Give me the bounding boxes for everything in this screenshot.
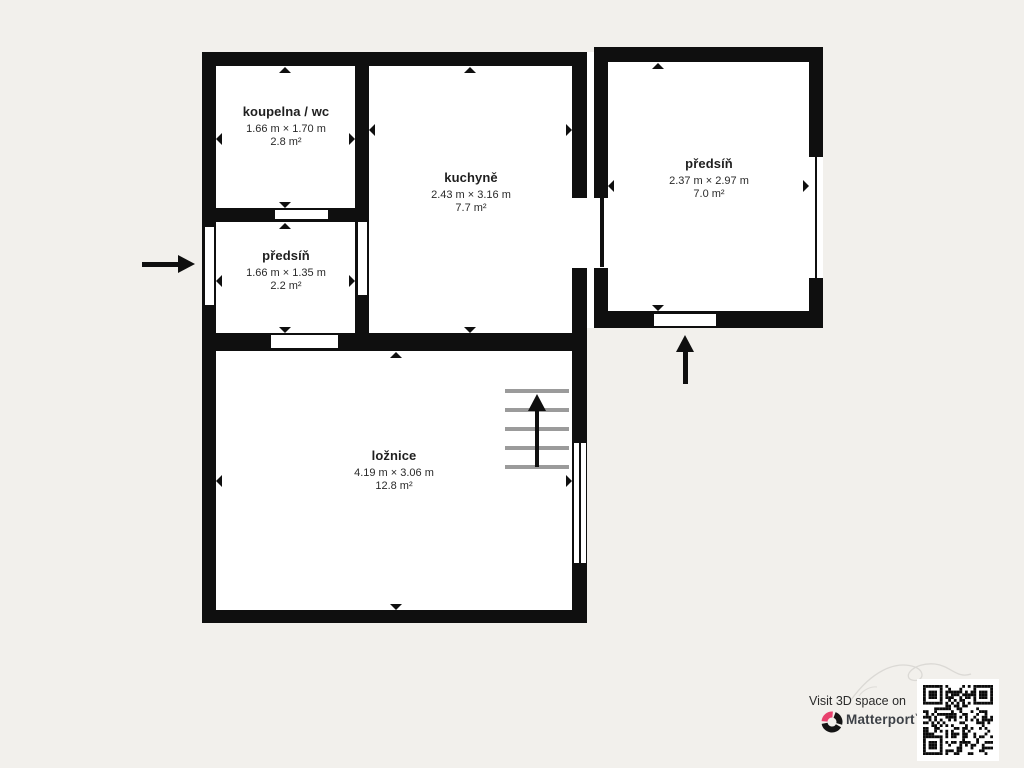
dim-marker (652, 63, 664, 69)
room-label-loznice: ložnice 4.19 m × 3.06 m 12.8 m² (313, 448, 475, 493)
stairs-arrow-shaft (535, 409, 539, 467)
room-dimensions: 2.43 m × 3.16 m (390, 189, 552, 202)
door-predsin-loznice (271, 335, 338, 348)
room-label-kuchyne: kuchyně 2.43 m × 3.16 m 7.7 m² (390, 170, 552, 215)
dim-marker (566, 124, 572, 136)
door-koupelna-predsin (275, 210, 328, 219)
room-dimensions: 4.19 m × 3.06 m (313, 467, 475, 480)
matterport-logo (820, 710, 844, 734)
room-label-koupelna: koupelna / wc 1.66 m × 1.70 m 2.8 m² (205, 104, 367, 149)
room-name: ložnice (313, 448, 475, 463)
room-area: 2.2 m² (205, 280, 367, 293)
room-dimensions: 1.66 m × 1.70 m (205, 123, 367, 136)
room-area: 2.8 m² (205, 136, 367, 149)
room-name: kuchyně (390, 170, 552, 185)
dim-marker (390, 352, 402, 358)
dim-marker (566, 475, 572, 487)
brand-text: Matterport (846, 712, 915, 727)
room-label-predsin-left: předsíň 1.66 m × 1.35 m 2.2 m² (205, 248, 367, 293)
room-area: 12.8 m² (313, 480, 475, 493)
arrow-right-icon (142, 262, 179, 267)
arrow-right-head (178, 255, 195, 273)
arrow-up-shaft (683, 351, 688, 384)
dim-marker (279, 327, 291, 333)
door-predsin-right-entry (654, 314, 716, 326)
room-area: 7.0 m² (628, 188, 790, 201)
door-leaf (600, 198, 604, 267)
dim-marker (369, 124, 375, 136)
dim-marker (608, 180, 614, 192)
room-name: koupelna / wc (205, 104, 367, 119)
room-dimensions: 2.37 m × 2.97 m (628, 175, 790, 188)
arrow-up-icon (676, 335, 694, 352)
gap-between-units (587, 52, 594, 328)
room-area: 7.7 m² (390, 202, 552, 215)
dim-marker (464, 327, 476, 333)
dim-marker (216, 475, 222, 487)
dim-marker (279, 202, 291, 208)
dim-marker (464, 67, 476, 73)
matterport-wordmark: Matterport™ (846, 712, 922, 727)
dim-marker (279, 67, 291, 73)
window-predsin-right-mullion (815, 157, 817, 278)
dim-marker (279, 223, 291, 229)
room-dimensions: 1.66 m × 1.35 m (205, 267, 367, 280)
room-name: předsíň (628, 156, 790, 171)
visit-3d-space-text: Visit 3D space on (780, 694, 906, 708)
staircase (505, 389, 569, 471)
qr-code (917, 679, 999, 761)
window-loznice-mullion (579, 443, 581, 563)
dim-marker (652, 305, 664, 311)
room-label-predsin-right: předsíň 2.37 m × 2.97 m 7.0 m² (628, 156, 790, 201)
stair-step (505, 389, 569, 393)
dim-marker (803, 180, 809, 192)
dim-marker (390, 604, 402, 610)
room-name: předsíň (205, 248, 367, 263)
